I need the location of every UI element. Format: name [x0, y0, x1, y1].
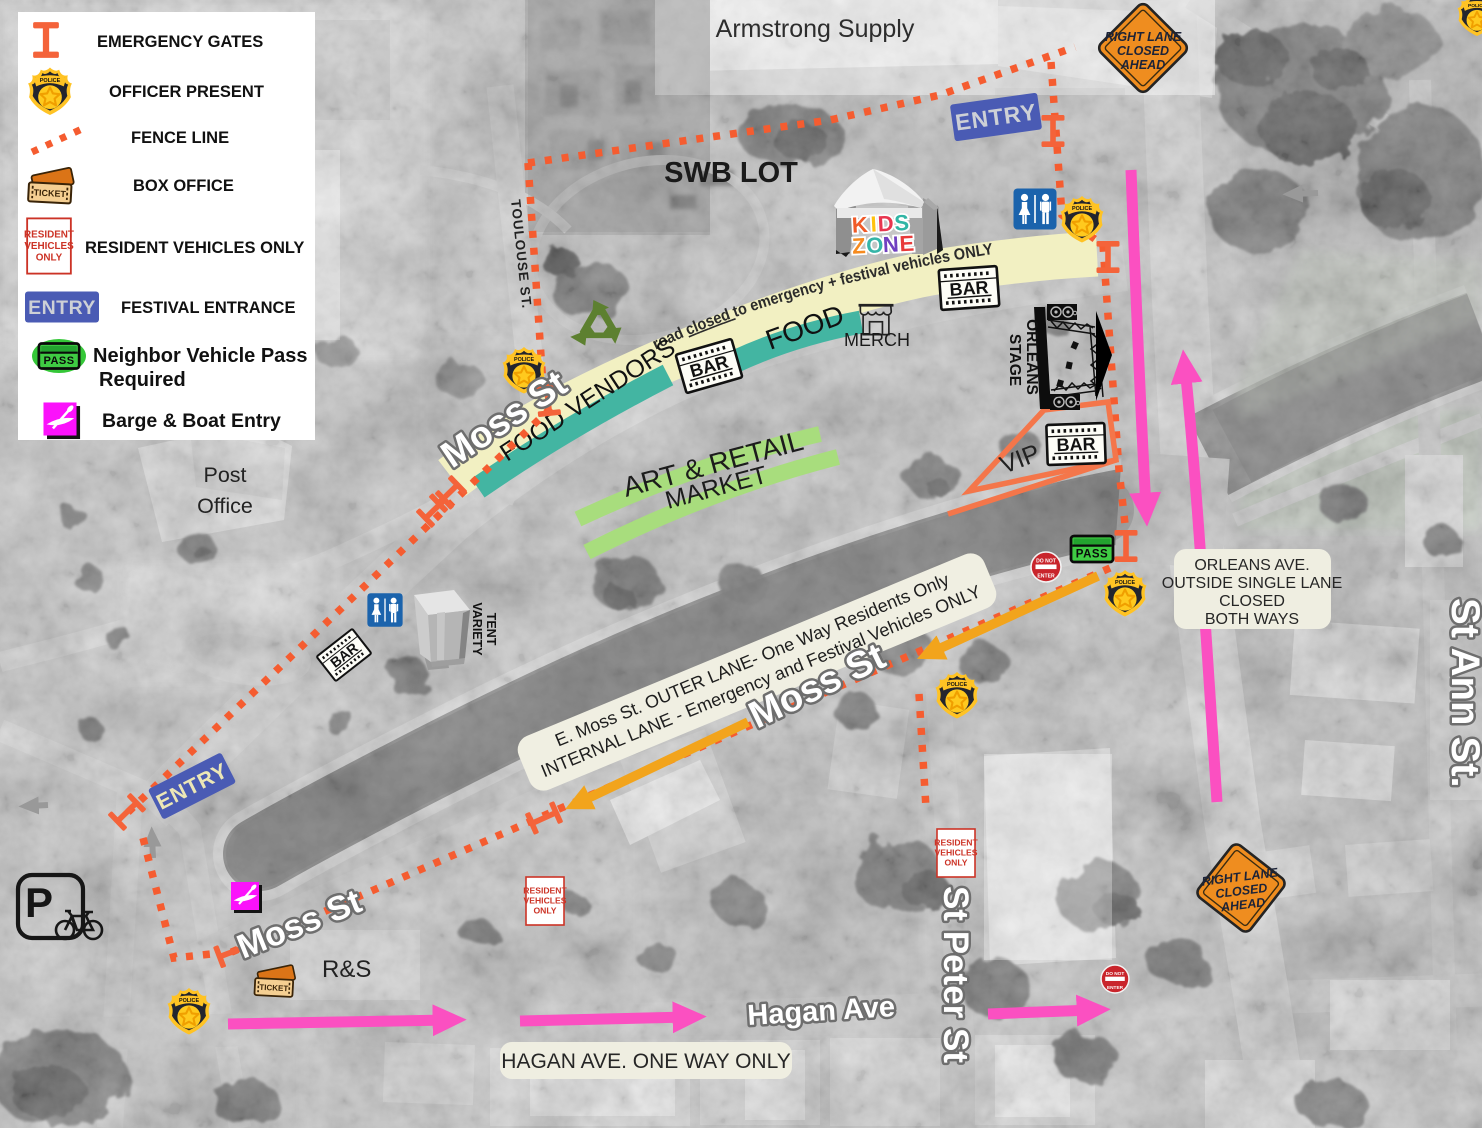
- svg-text:MERCH: MERCH: [844, 330, 910, 350]
- svg-text:HAGAN AVE. ONE WAY ONLY: HAGAN AVE. ONE WAY ONLY: [501, 1050, 790, 1073]
- svg-text:Neighbor Vehicle Pass: Neighbor Vehicle Pass: [93, 345, 308, 367]
- svg-text:Armstrong Supply: Armstrong Supply: [716, 15, 915, 43]
- svg-text:Office: Office: [197, 494, 253, 518]
- svg-text:ENTRY: ENTRY: [28, 297, 96, 319]
- svg-text:BOTH WAYS: BOTH WAYS: [1205, 611, 1299, 628]
- svg-text:Required: Required: [99, 369, 186, 391]
- svg-text:R&S: R&S: [322, 956, 371, 983]
- svg-text:STAGE: STAGE: [1006, 334, 1023, 386]
- svg-text:FENCE LINE: FENCE LINE: [131, 129, 229, 147]
- svg-text:TENT: TENT: [484, 613, 498, 646]
- svg-text:N: N: [882, 231, 899, 257]
- svg-text:Z: Z: [851, 233, 866, 259]
- svg-text:RESIDENT VEHICLES ONLY: RESIDENT VEHICLES ONLY: [85, 239, 304, 257]
- svg-text:O: O: [866, 232, 884, 258]
- svg-text:E: E: [899, 231, 915, 257]
- svg-text:Barge & Boat Entry: Barge & Boat Entry: [102, 410, 281, 432]
- svg-text:BOX OFFICE: BOX OFFICE: [133, 177, 234, 195]
- svg-text:SWB LOT: SWB LOT: [664, 157, 798, 189]
- svg-text:OFFICER PRESENT: OFFICER PRESENT: [109, 83, 264, 101]
- svg-text:St Ann St.: St Ann St.: [1443, 598, 1482, 788]
- svg-text:FESTIVAL ENTRANCE: FESTIVAL ENTRANCE: [121, 299, 295, 317]
- svg-text:CLOSED: CLOSED: [1219, 593, 1285, 610]
- svg-text:P: P: [25, 879, 53, 926]
- svg-text:Post: Post: [203, 463, 246, 487]
- svg-text:St Peter St: St Peter St: [936, 886, 975, 1063]
- svg-text:VARIETY: VARIETY: [470, 602, 484, 656]
- svg-text:ORLEANS AVE.: ORLEANS AVE.: [1194, 557, 1309, 574]
- svg-text:ORLEANS: ORLEANS: [1023, 319, 1040, 395]
- svg-text:EMERGENCY GATES: EMERGENCY GATES: [97, 33, 263, 51]
- svg-text:OUTSIDE SINGLE LANE: OUTSIDE SINGLE LANE: [1162, 575, 1343, 592]
